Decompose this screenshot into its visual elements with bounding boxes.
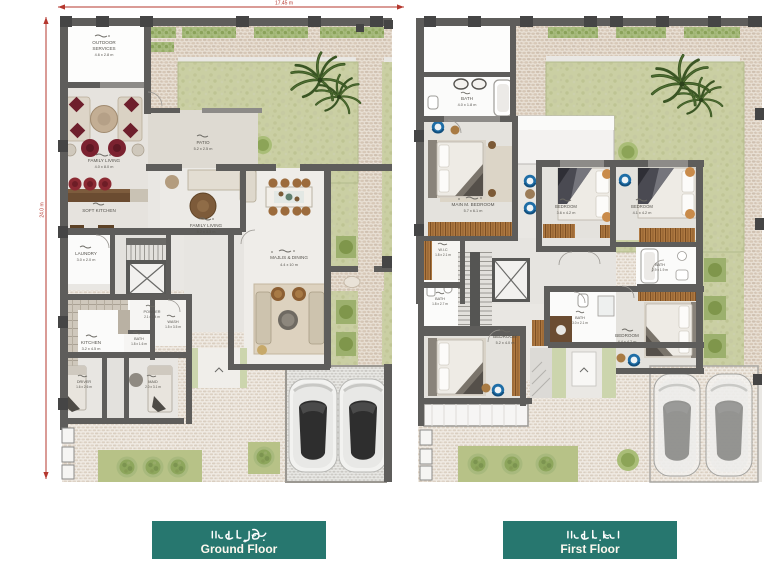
svg-text:4.0 x 8.0 m: 4.0 x 8.0 m [95,165,114,169]
svg-text:POWDER: POWDER [143,310,160,314]
svg-text:4.4 x 10 m: 4.4 x 10 m [280,263,298,267]
svg-text:4.1 x 4.2 m: 4.1 x 4.2 m [633,211,652,215]
svg-text:MAIN M. BEDROOM: MAIN M. BEDROOM [452,202,495,207]
svg-text:KITCHEN: KITCHEN [81,340,101,345]
svg-text:4.0 x 1.8 m: 4.0 x 1.8 m [458,103,477,107]
svg-text:1.8 x 2.7 m: 1.8 x 2.7 m [432,302,448,306]
svg-text:WASH: WASH [167,320,179,324]
svg-text:FAMILY LIVING: FAMILY LIVING [88,158,121,163]
svg-text:3.0 x 2.1 m: 3.0 x 2.1 m [572,321,588,325]
svg-text:5.2 x 4.0 m: 5.2 x 4.0 m [496,341,515,345]
svg-text:SOFT KITCHEN: SOFT KITCHEN [82,208,116,213]
svg-text:FAMILY LIVING: FAMILY LIVING [190,223,223,228]
svg-text:BEDROOM: BEDROOM [493,334,517,339]
svg-text:OUTDOOR: OUTDOOR [92,40,116,45]
svg-text:2.9 x 1.9 m: 2.9 x 1.9 m [652,268,668,272]
svg-text:17.45 m: 17.45 m [275,1,293,7]
svg-text:BEDROOM: BEDROOM [555,204,577,209]
svg-text:MAID: MAID [148,380,158,384]
svg-text:5.7 x 6.1 m: 5.7 x 6.1 m [464,209,483,213]
svg-text:First Floor: First Floor [560,542,620,556]
svg-text:2.0 x 3.1 m: 2.0 x 3.1 m [145,385,161,389]
svg-text:BATH: BATH [461,96,473,101]
svg-text:W.I.C: W.I.C [438,248,448,252]
svg-text:4.4 x 4.2 m: 4.4 x 4.2 m [618,340,637,344]
svg-text:1.8 x 2.1 m: 1.8 x 2.1 m [435,253,451,257]
svg-text:BATH: BATH [655,263,665,267]
svg-text:24.0 m: 24.0 m [40,202,46,217]
svg-text:DRIVER: DRIVER [77,380,92,384]
svg-text:2.1 x 1.4 m: 2.1 x 1.4 m [144,315,160,319]
svg-text:5.2 x 3.3 m: 5.2 x 3.3 m [197,230,216,234]
svg-text:1.8 x 1.6 m: 1.8 x 1.6 m [131,342,147,346]
svg-text:PATIO: PATIO [196,140,210,145]
svg-text:5.2 x 2.5 m: 5.2 x 2.5 m [194,147,213,151]
svg-text:1.6 x 2.6 m: 1.6 x 2.6 m [76,385,92,389]
svg-text:4.6 x 2.8 m: 4.6 x 2.8 m [95,53,114,57]
svg-text:3.2 x 4.5 m: 3.2 x 4.5 m [82,347,101,351]
svg-text:Ground Floor: Ground Floor [201,542,278,556]
svg-text:BEDROOM: BEDROOM [631,204,653,209]
svg-text:BEDROOM: BEDROOM [615,333,639,338]
svg-text:3.6 x 4.2 m: 3.6 x 4.2 m [557,211,576,215]
svg-text:BATH: BATH [575,316,585,320]
svg-text:LAUNDRY: LAUNDRY [75,251,97,256]
svg-text:BATH: BATH [435,297,445,301]
svg-text:MAJLIS & DINING: MAJLIS & DINING [270,255,308,260]
svg-text:BATH: BATH [134,337,144,341]
svg-text:1.5 x 3.5 m: 1.5 x 3.5 m [165,325,181,329]
svg-text:3.0 x 2.0 m: 3.0 x 2.0 m [77,258,96,262]
svg-text:SERVICES: SERVICES [92,46,115,51]
